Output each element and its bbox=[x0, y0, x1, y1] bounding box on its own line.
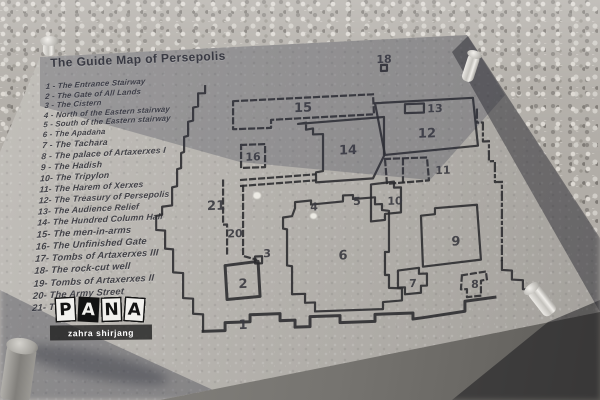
map-label-10: 10 bbox=[387, 194, 403, 208]
stone-chip bbox=[253, 192, 261, 199]
stone-chip bbox=[310, 213, 317, 219]
map-label-20: 20 bbox=[227, 227, 243, 241]
map-label-3: 3 bbox=[263, 247, 271, 260]
map-corridor-lower bbox=[241, 180, 315, 186]
photo-scene: The Guide Map of Persepolis 1 - The Entr… bbox=[0, 0, 600, 400]
map-label-5: 5 bbox=[353, 195, 361, 208]
map-label-6: 6 bbox=[338, 248, 347, 263]
map-label-4: 4 bbox=[310, 200, 318, 213]
map-label-8: 8 bbox=[471, 278, 479, 291]
watermark-letter: A bbox=[77, 296, 99, 322]
map-label-9: 9 bbox=[451, 234, 460, 249]
pana-watermark: P A N A bbox=[55, 297, 145, 322]
watermark-letter: P bbox=[54, 296, 76, 322]
watermark-letter: N bbox=[101, 297, 123, 323]
map-army-street-west bbox=[223, 180, 227, 255]
watermark-credit-band: zahra shirjang bbox=[50, 325, 152, 341]
map-label-21: 21 bbox=[207, 199, 225, 215]
watermark-credit: zahra shirjang bbox=[68, 327, 134, 338]
map-label-7: 7 bbox=[409, 277, 417, 290]
map-label-2: 2 bbox=[239, 277, 248, 292]
mounting-peg bbox=[40, 36, 60, 58]
watermark-letter: A bbox=[123, 296, 146, 322]
peg-cap bbox=[40, 36, 59, 46]
map-label-1: 1 bbox=[239, 318, 248, 333]
map-corridor-upper bbox=[241, 174, 315, 180]
